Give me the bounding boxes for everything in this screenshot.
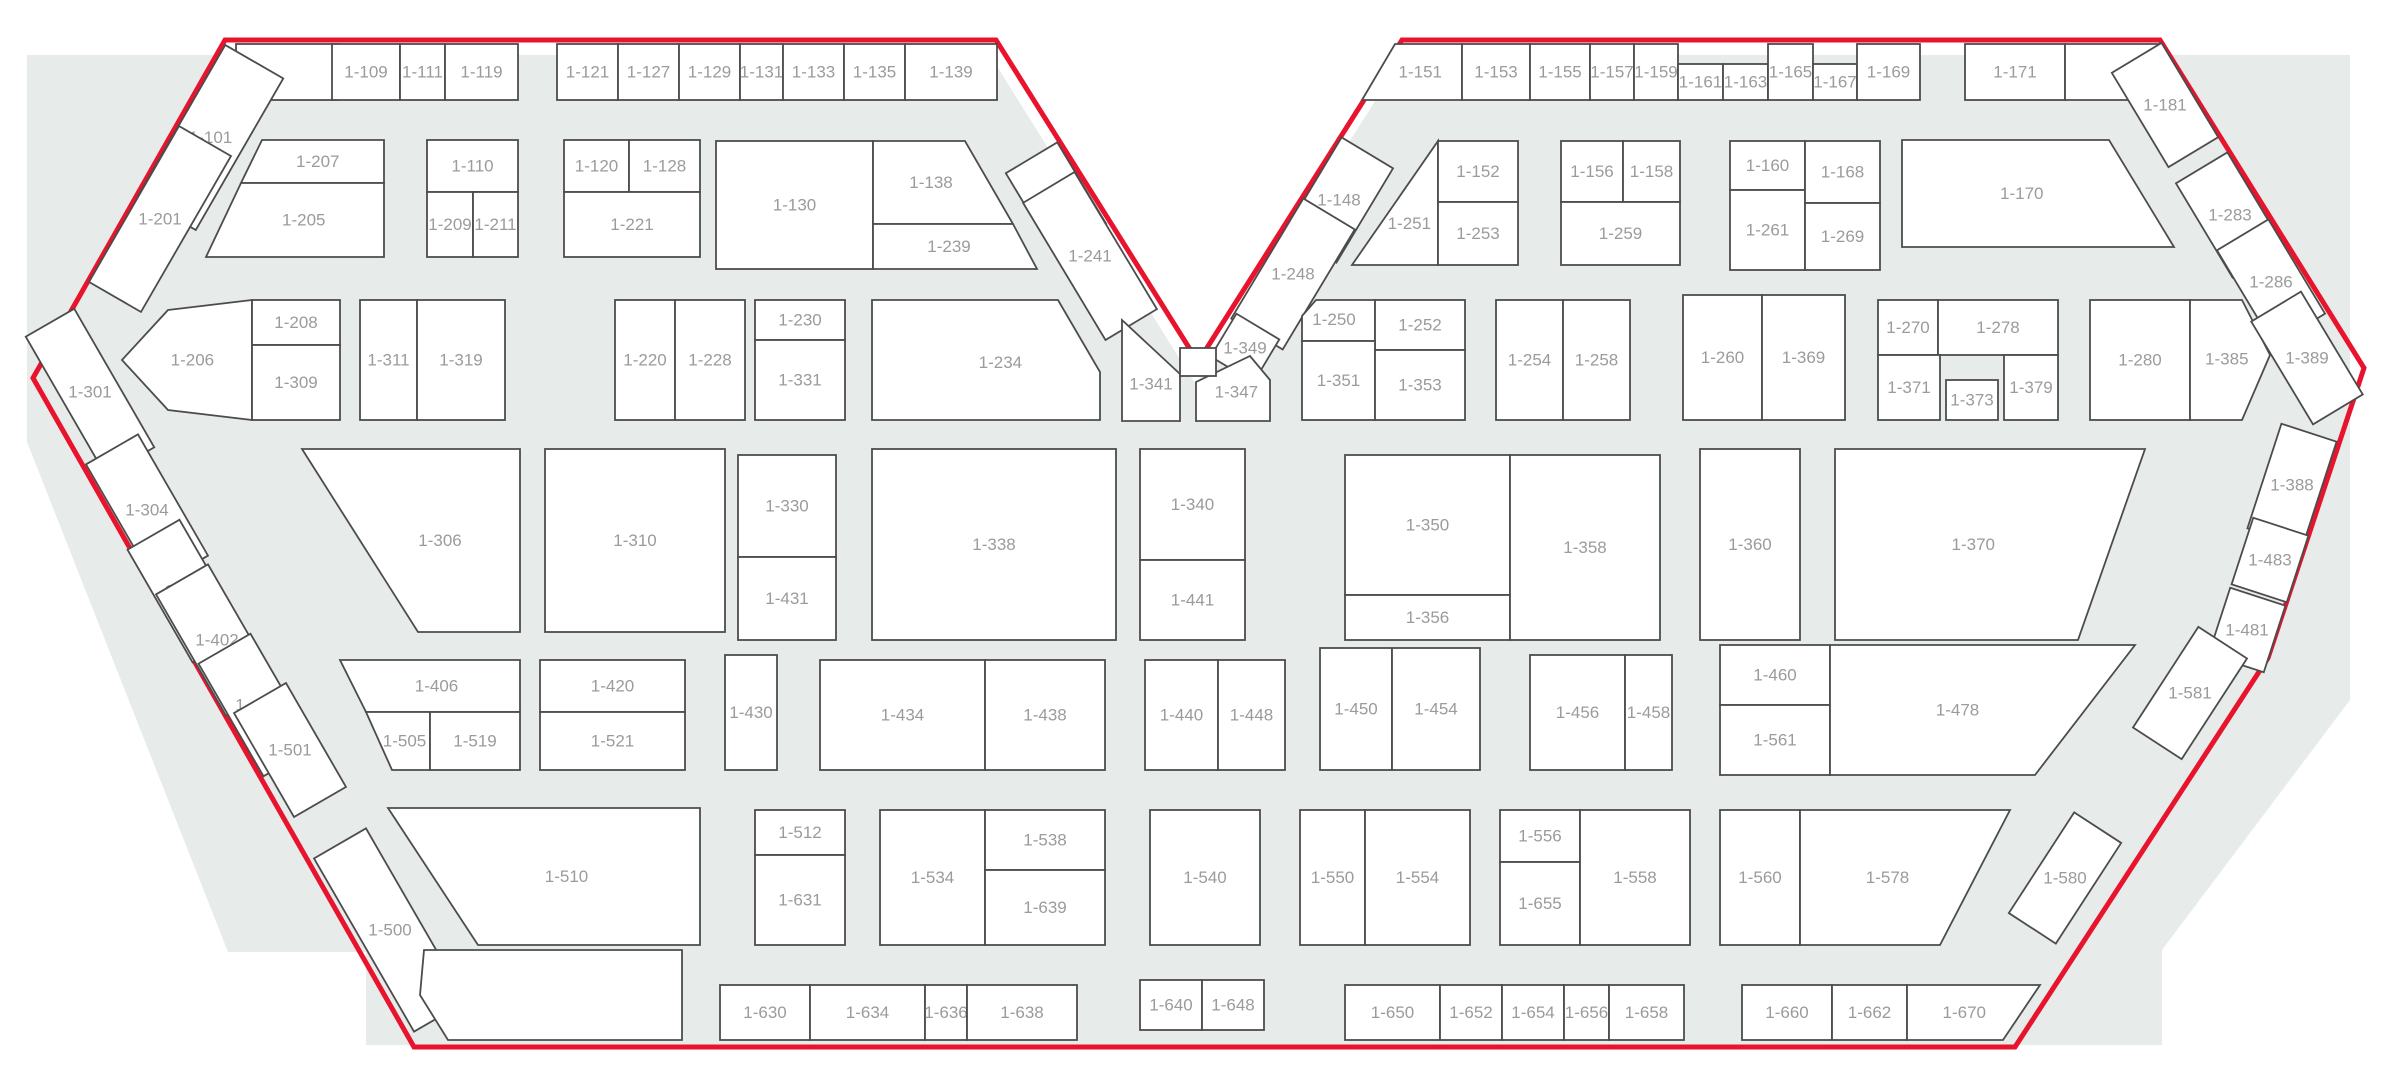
booth-1-260-shape[interactable] [1683,295,1762,420]
booth-1-269-shape[interactable] [1805,203,1880,270]
booth-1-139: 1-139 [905,44,997,100]
booth-1-636: 1-636 [924,985,967,1040]
booth-1-119: 1-119 [445,44,518,100]
booth-1-560: 1-560 [1720,810,1800,945]
booth-1-158-shape[interactable] [1623,141,1680,202]
booth-1-358: 1-358 [1510,455,1660,640]
booth-1-310-shape[interactable] [545,449,725,632]
booth-1-158: 1-158 [1623,141,1680,202]
booth-1-350-shape[interactable] [1345,455,1510,595]
booth-1-438-shape[interactable] [985,660,1105,770]
booth-1-139-shape[interactable] [905,44,997,100]
booth-1-319: 1-319 [417,300,505,420]
booth-1-660: 1-660 [1742,985,1832,1040]
booth-1-640: 1-640 [1140,980,1202,1030]
booth-1-648: 1-648 [1202,980,1264,1030]
booth-1-658: 1-658 [1609,985,1684,1040]
booth-1-234-shape[interactable] [872,300,1100,420]
booth-1-658-shape[interactable] [1609,985,1684,1040]
booth-1-454: 1-454 [1392,648,1480,770]
booth-1-406: 1-406 [340,660,520,712]
booth-1-640-shape[interactable] [1140,980,1202,1030]
booth-1-458-shape[interactable] [1625,655,1672,770]
booth-1-207: 1-207 [241,140,384,183]
booth-1-230: 1-230 [755,300,845,340]
booth-1-379: 1-379 [2004,355,2058,420]
booth-1-356: 1-356 [1345,595,1510,640]
booth-1-441-shape[interactable] [1140,560,1245,640]
booth-1-550-shape[interactable] [1300,810,1365,945]
booth-1-270: 1-270 [1878,300,1938,355]
booth-1-171-shape[interactable] [1965,44,2065,100]
booth-1-128-shape[interactable] [629,140,700,192]
booth-1-360-shape[interactable] [1700,449,1800,640]
booth-1-660-shape[interactable] [1742,985,1832,1040]
booth-1-558: 1-558 [1580,810,1690,945]
booth-1-228: 1-228 [675,300,745,420]
booth-1-230-shape[interactable] [755,300,845,340]
booth-1-561: 1-561 [1720,705,1830,775]
booth-1-239-shape[interactable] [873,224,1037,269]
booth-1-234: 1-234 [872,300,1100,420]
booth-1-163-shape[interactable] [1723,64,1768,100]
booth-1-662-shape[interactable] [1832,985,1907,1040]
booth-1-161-shape[interactable] [1678,64,1723,100]
booth-1-351-shape[interactable] [1302,341,1375,420]
booth-1-338-shape[interactable] [872,449,1116,640]
booth-1-258: 1-258 [1563,300,1630,420]
booth-1-351: 1-351 [1302,341,1375,420]
booth-1-639-shape[interactable] [985,870,1105,945]
booth-1-652: 1-652 [1440,985,1502,1040]
booth-1-330: 1-330 [738,455,836,557]
booth-1-131: 1-131 [740,44,783,100]
booth-1-120: 1-120 [564,140,629,192]
booth-1-379-shape[interactable] [2004,355,2058,420]
booth-1-458: 1-458 [1625,655,1672,770]
booth-1-431: 1-431 [738,557,836,640]
booth-1-371: 1-371 [1878,355,1940,420]
booth-1-631: 1-631 [755,855,845,945]
booth-1-129-shape[interactable] [679,44,740,100]
booth-1-159: 1-159 [1634,44,1678,100]
booth-1-153: 1-153 [1462,44,1530,100]
booth-1-209-shape[interactable] [427,192,473,257]
booth-1-311: 1-311 [360,300,417,420]
booth-1-129: 1-129 [679,44,740,100]
booth-1-460-shape[interactable] [1720,645,1830,705]
booth-1-163: 1-163 [1723,64,1768,100]
booth-1-280-shape[interactable] [2090,300,2190,420]
booth-1-133-shape[interactable] [783,44,844,100]
booth-1-127: 1-127 [618,44,679,100]
booth-1-127-shape[interactable] [618,44,679,100]
booth-1-221-shape[interactable] [564,192,700,257]
booth-1-638: 1-638 [967,985,1077,1040]
booth-1-406-shape[interactable] [340,660,520,712]
booth-1-156: 1-156 [1561,141,1623,202]
booth-1-556-shape[interactable] [1500,810,1580,862]
booth-1-636-shape[interactable] [925,985,967,1040]
booth-1-133: 1-133 [783,44,844,100]
booth-1-448-shape[interactable] [1218,660,1285,770]
booth-1-211-shape[interactable] [473,192,518,257]
booth-1-655: 1-655 [1500,862,1580,945]
booth-1-110: 1-110 [427,140,518,192]
booth-1-648-shape[interactable] [1202,980,1264,1030]
booth-1-350: 1-350 [1345,455,1510,595]
booth-1-630-shape[interactable] [720,985,810,1040]
booth-1-155: 1-155 [1530,44,1590,100]
booth-1-340: 1-340 [1140,449,1245,560]
booth-1-221: 1-221 [564,192,700,257]
booth-1-634: 1-634 [810,985,925,1040]
booth-1-456: 1-456 [1530,655,1625,770]
booth-1-168: 1-168 [1805,141,1880,203]
booth-1-373: 1-373 [1946,380,1998,420]
booth-1-169: 1-169 [1857,44,1920,100]
booth-1-521-shape[interactable] [540,712,685,770]
booth-1-655-shape[interactable] [1500,862,1580,945]
v-apex-notch [1180,348,1216,376]
booth-1-250-shape[interactable] [1302,300,1375,341]
booth-1-460: 1-460 [1720,645,1830,705]
booth-1-110-shape[interactable] [427,140,518,192]
booth-1-259-shape[interactable] [1561,202,1680,265]
booth-1-260: 1-260 [1683,295,1762,420]
booth-1-259: 1-259 [1561,202,1680,265]
booth-1-220: 1-220 [615,300,675,420]
booth-1-111: 1-111 [400,44,445,100]
booth-1-554: 1-554 [1365,810,1470,945]
booth-1-338: 1-338 [872,449,1116,640]
booth-1-171: 1-171 [1965,44,2065,100]
booth-1-208: 1-208 [252,300,340,345]
booth-1-208-shape[interactable] [252,300,340,345]
booth-1-450-shape[interactable] [1320,648,1392,770]
booth-1-254: 1-254 [1496,300,1563,420]
booth-1-165-shape[interactable] [1768,44,1813,100]
booth-1-656-shape[interactable] [1564,985,1609,1040]
booth-1-254-shape[interactable] [1496,300,1563,420]
booth-1-111-shape[interactable] [400,44,445,100]
booth-1-278-shape[interactable] [1938,300,2058,355]
booth-1-159-shape[interactable] [1634,44,1678,100]
booth-1-440-shape[interactable] [1145,660,1218,770]
booth-1-160: 1-160 [1730,141,1805,190]
booth-1-250: 1-250 [1302,300,1375,341]
booth-1-534: 1-534 [880,810,985,945]
booth-1-161: 1-161 [1678,64,1723,100]
booth-1-631-shape[interactable] [755,855,845,945]
booth-1-109: 1-109 [332,44,400,100]
booth-1-121-shape[interactable] [557,44,618,100]
booth-1-168-shape[interactable] [1805,141,1880,203]
booth-1-561-shape[interactable] [1720,705,1830,775]
booth-1-450: 1-450 [1320,648,1392,770]
booth-1-252: 1-252 [1375,300,1465,350]
booth-1-269: 1-269 [1805,203,1880,270]
booth-1-156-shape[interactable] [1561,141,1623,202]
booth-1-311-shape[interactable] [360,300,417,420]
booth-1-656: 1-656 [1564,985,1609,1040]
booth-1-207-shape[interactable] [241,140,384,183]
booth-1-630: 1-630 [720,985,810,1040]
booth-1-128: 1-128 [629,140,700,192]
booth-1-652-shape[interactable] [1440,985,1502,1040]
booth-1-167-shape[interactable] [1813,64,1857,100]
booth-1-109-shape[interactable] [332,44,400,100]
booth-1-519-shape[interactable] [430,712,520,770]
booth-1-431-shape[interactable] [738,557,836,640]
booth-1-252-shape[interactable] [1375,300,1465,350]
booth-1-152: 1-152 [1438,141,1518,202]
booth-1-556: 1-556 [1500,810,1580,862]
booth-1-454-shape[interactable] [1392,648,1480,770]
booth-1-538-shape[interactable] [985,810,1105,870]
booth-1-130-shape[interactable] [716,141,873,269]
booth-1-558-shape[interactable] [1580,810,1690,945]
booth-1-157-shape[interactable] [1590,44,1634,100]
booth-1-261-shape[interactable] [1730,190,1805,270]
booth-1-239: 1-239 [873,224,1037,269]
booth-1-438: 1-438 [985,660,1105,770]
booth-1-540-shape[interactable] [1150,810,1260,945]
booth-1-151: 1-151 [1362,44,1462,100]
booth-1-430-shape[interactable] [725,655,777,770]
booth-1-441: 1-441 [1140,560,1245,640]
booth-1-654: 1-654 [1502,985,1564,1040]
booth-1-360: 1-360 [1700,449,1800,640]
booth-1-270-shape[interactable] [1878,300,1938,355]
booth-1-331-shape[interactable] [755,340,845,420]
booth-1-280: 1-280 [2090,300,2190,420]
booth-1-167: 1-167 [1813,64,1857,100]
booth-1-550: 1-550 [1300,810,1365,945]
booth-1-220-shape[interactable] [615,300,675,420]
booth-1-228-shape[interactable] [675,300,745,420]
booth-1-309: 1-309 [252,345,340,420]
booth-1-356-shape[interactable] [1345,595,1510,640]
booth-1-319-shape[interactable] [417,300,505,420]
booth-1-538: 1-538 [985,810,1105,870]
booth-1-560-shape[interactable] [1720,810,1800,945]
booth-1-165: 1-165 [1768,44,1813,100]
booth-1-650-shape[interactable] [1345,985,1440,1040]
booth-1-512: 1-512 [755,810,845,855]
booth-1-340-shape[interactable] [1140,449,1245,560]
booth-1-512-shape[interactable] [755,810,845,855]
booth-1-540: 1-540 [1150,810,1260,945]
booth-1-121: 1-121 [557,44,618,100]
booth-unlabeled-3 [420,950,682,1040]
booth-1-211: 1-211 [473,192,518,257]
floor-plan-page: 1-1091-1111-1191-1211-1271-1291-1311-133… [0,0,2387,1080]
booth-1-456-shape[interactable] [1530,655,1625,770]
floor-plan-canvas: 1-1091-1111-1191-1211-1271-1291-1311-133… [0,0,2387,1080]
booth-1-420-shape[interactable] [540,660,685,712]
booth-1-130: 1-130 [716,141,873,269]
booth-1-309-shape[interactable] [252,345,340,420]
booth-1-331: 1-331 [755,340,845,420]
booth-1-634-shape[interactable] [810,985,925,1040]
booth-1-278: 1-278 [1938,300,2058,355]
booth-1-534-shape[interactable] [880,810,985,945]
booth-1-373-shape[interactable] [1946,380,1998,420]
booth-1-131-shape[interactable] [740,44,783,100]
booth-1-135-shape[interactable] [844,44,905,100]
booth-1-330-shape[interactable] [738,455,836,557]
booth-1-310: 1-310 [545,449,725,632]
booth-1-654-shape[interactable] [1502,985,1564,1040]
booth-1-157: 1-157 [1590,44,1634,100]
booth-1-371-shape[interactable] [1878,355,1940,420]
booth-1-521: 1-521 [540,712,685,770]
booth-1-119-shape[interactable] [445,44,518,100]
booth-unlabeled-3-shape[interactable] [420,950,682,1040]
booth-1-353-shape[interactable] [1375,350,1465,420]
booth-1-369: 1-369 [1762,295,1845,420]
booth-1-434: 1-434 [820,660,985,770]
booth-1-209: 1-209 [427,192,473,257]
booth-1-169-shape[interactable] [1857,44,1920,100]
booth-1-253: 1-253 [1438,202,1518,265]
booth-1-153-shape[interactable] [1462,44,1530,100]
booth-1-358-shape[interactable] [1510,455,1660,640]
booth-1-662: 1-662 [1832,985,1907,1040]
booth-1-120-shape[interactable] [564,140,629,192]
booth-1-638-shape[interactable] [967,985,1077,1040]
booth-1-519: 1-519 [430,712,520,770]
booth-1-151-shape[interactable] [1362,44,1462,100]
booth-1-155-shape[interactable] [1530,44,1590,100]
booth-1-369-shape[interactable] [1762,295,1845,420]
booth-1-430: 1-430 [725,655,777,770]
booth-1-434-shape[interactable] [820,660,985,770]
booth-1-448: 1-448 [1218,660,1285,770]
booth-1-639: 1-639 [985,870,1105,945]
booth-1-258-shape[interactable] [1563,300,1630,420]
booth-1-135: 1-135 [844,44,905,100]
booth-1-261: 1-261 [1730,190,1805,270]
booth-1-650: 1-650 [1345,985,1440,1040]
booth-1-353: 1-353 [1375,350,1465,420]
booth-1-420: 1-420 [540,660,685,712]
booth-1-152-shape[interactable] [1438,141,1518,202]
booth-1-253-shape[interactable] [1438,202,1518,265]
booth-1-554-shape[interactable] [1365,810,1470,945]
booth-1-160-shape[interactable] [1730,141,1805,190]
booth-1-440: 1-440 [1145,660,1218,770]
